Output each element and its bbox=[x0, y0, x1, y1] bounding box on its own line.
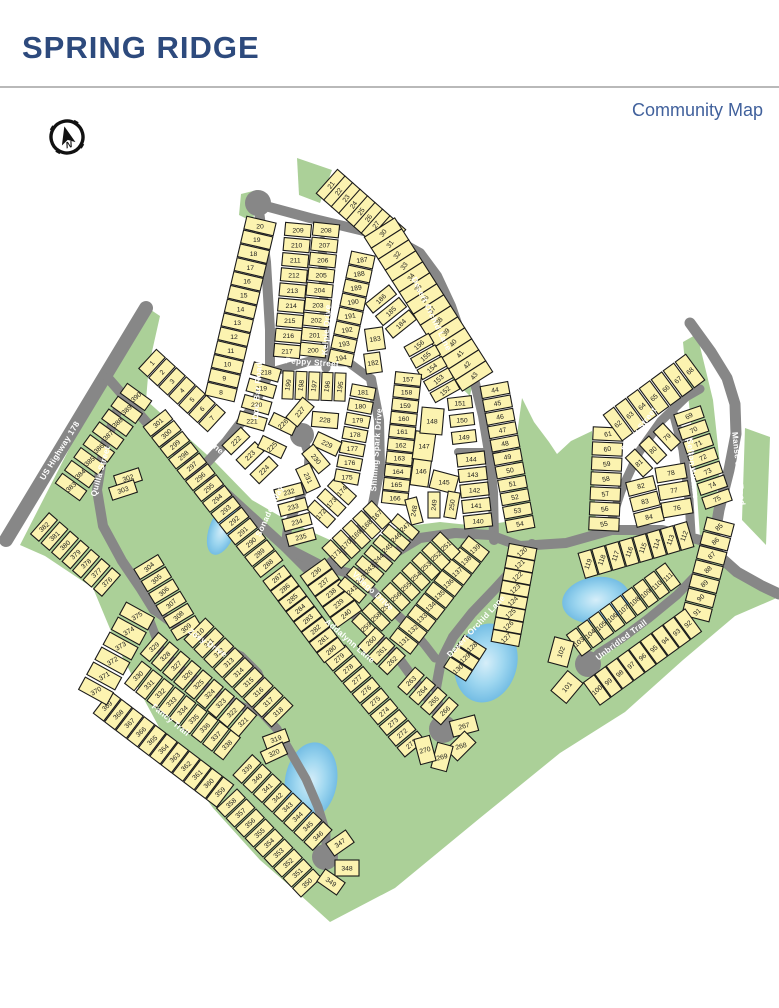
lot-number: 59 bbox=[602, 461, 611, 469]
lot-number: 161 bbox=[397, 429, 409, 436]
lot-number: 8 bbox=[219, 389, 223, 396]
lot-number: 19 bbox=[253, 237, 261, 244]
compass-icon: N bbox=[48, 118, 87, 157]
lot-number: 51 bbox=[508, 480, 517, 488]
lot-number: 45 bbox=[493, 400, 502, 408]
lot-210: 210 bbox=[283, 237, 310, 252]
lot-number: 164 bbox=[392, 469, 404, 476]
lot-number: 83 bbox=[641, 498, 650, 506]
lot-number: 178 bbox=[349, 432, 361, 439]
lot-number: 48 bbox=[501, 440, 510, 448]
lot-number: 203 bbox=[312, 302, 324, 309]
community-map: 1234567891011121314151617181920212223242… bbox=[0, 0, 779, 1008]
lot-211: 211 bbox=[282, 253, 309, 268]
lot-number: 56 bbox=[600, 506, 609, 514]
lot-number: 177 bbox=[347, 446, 359, 453]
lot-number: 158 bbox=[401, 390, 413, 397]
lot-number: 47 bbox=[498, 427, 507, 435]
lot-144: 144 bbox=[456, 451, 485, 467]
lot-number: 209 bbox=[292, 227, 304, 234]
lot-213: 213 bbox=[279, 283, 306, 298]
lot-number: 176 bbox=[344, 460, 356, 467]
lot-212: 212 bbox=[280, 268, 307, 283]
lot-number: 13 bbox=[233, 320, 241, 327]
lot-number: 151 bbox=[454, 400, 466, 407]
lot-215: 215 bbox=[276, 313, 303, 328]
lot-207: 207 bbox=[311, 237, 338, 253]
lot-number: 214 bbox=[285, 303, 297, 310]
lot-number: 202 bbox=[311, 317, 323, 324]
lot-56: 56 bbox=[589, 502, 620, 516]
lot-number: 61 bbox=[604, 431, 613, 439]
lot-number: 159 bbox=[399, 403, 411, 410]
lot-162: 162 bbox=[387, 438, 414, 453]
lot-number: 46 bbox=[496, 413, 505, 421]
lot-182: 182 bbox=[364, 352, 383, 374]
lot-179: 179 bbox=[345, 412, 371, 428]
lot-57: 57 bbox=[590, 487, 621, 501]
lot-number: 149 bbox=[458, 434, 470, 441]
lot-158: 158 bbox=[393, 385, 420, 400]
lot-number: 9 bbox=[222, 375, 226, 382]
lot-250: 250 bbox=[444, 491, 460, 519]
lot-198: 198 bbox=[295, 371, 307, 399]
lot-number: 249 bbox=[431, 499, 439, 511]
lot-209: 209 bbox=[284, 222, 311, 237]
lot-208: 208 bbox=[312, 222, 339, 238]
lot-145: 145 bbox=[429, 470, 459, 494]
lot-number: 166 bbox=[389, 495, 401, 502]
lot-number: 207 bbox=[319, 242, 331, 249]
lot-number: 205 bbox=[315, 272, 327, 279]
lot-number: 16 bbox=[243, 279, 251, 286]
lot-number: 17 bbox=[246, 265, 254, 272]
lot-number: 157 bbox=[402, 376, 414, 383]
lot-160: 160 bbox=[390, 411, 417, 426]
lot-number: 200 bbox=[307, 347, 319, 354]
lot-number: 162 bbox=[395, 442, 407, 449]
lot-number: 146 bbox=[415, 468, 427, 475]
lot-147: 147 bbox=[412, 431, 436, 462]
lot-176: 176 bbox=[337, 455, 363, 471]
lot-number: 250 bbox=[449, 499, 457, 511]
lot-number: 84 bbox=[645, 514, 654, 522]
lot-number: 145 bbox=[438, 479, 450, 486]
lot-number: 348 bbox=[341, 865, 353, 872]
lot-number: 60 bbox=[603, 446, 612, 454]
lot-149: 149 bbox=[451, 430, 476, 445]
lot-150: 150 bbox=[449, 413, 474, 428]
lot-number: 15 bbox=[240, 292, 248, 299]
lot-number: 215 bbox=[284, 318, 296, 325]
lot-number: 54 bbox=[516, 521, 525, 529]
lot-number: 212 bbox=[288, 273, 300, 280]
lot-number: 82 bbox=[637, 483, 646, 491]
lot-206: 206 bbox=[309, 252, 336, 268]
lot-number: 217 bbox=[281, 348, 293, 355]
lot-number: 52 bbox=[511, 494, 520, 502]
lot-214: 214 bbox=[278, 298, 305, 313]
lot-55: 55 bbox=[589, 517, 620, 531]
lot-number: 55 bbox=[600, 521, 609, 529]
lot-number: 20 bbox=[256, 223, 264, 230]
lot-number: 210 bbox=[291, 242, 303, 249]
lot-number: 179 bbox=[352, 418, 364, 425]
lot-number: 163 bbox=[394, 456, 406, 463]
lot-number: 150 bbox=[456, 417, 468, 424]
lot-164: 164 bbox=[384, 464, 411, 479]
lot-183: 183 bbox=[365, 327, 386, 351]
culdesac-0 bbox=[245, 190, 271, 216]
lot-number: 12 bbox=[230, 334, 238, 341]
lot-148: 148 bbox=[420, 407, 444, 435]
lot-196: 196 bbox=[321, 372, 333, 400]
lot-number: 144 bbox=[465, 456, 477, 463]
lot-177: 177 bbox=[339, 441, 365, 457]
lot-216: 216 bbox=[275, 328, 302, 343]
lot-number: 201 bbox=[309, 332, 321, 339]
lot-161: 161 bbox=[389, 425, 416, 440]
lot-number: 50 bbox=[506, 467, 515, 475]
green-area-4 bbox=[742, 428, 770, 545]
lot-348: 348 bbox=[335, 860, 359, 876]
lot-number: 57 bbox=[601, 491, 610, 499]
lot-number: 175 bbox=[341, 474, 353, 481]
lot-number: 143 bbox=[467, 472, 479, 479]
lot-225: 225 bbox=[257, 436, 286, 459]
lot-140: 140 bbox=[463, 513, 492, 529]
lot-number: 208 bbox=[320, 227, 332, 234]
lot-number: 140 bbox=[472, 518, 484, 525]
lot-142: 142 bbox=[460, 482, 489, 498]
lot-165: 165 bbox=[383, 477, 410, 492]
lot-248: 248 bbox=[405, 497, 423, 525]
lot-number: 44 bbox=[491, 387, 500, 395]
lot-60: 60 bbox=[592, 442, 623, 456]
lot-number: 141 bbox=[471, 503, 483, 510]
lot-159: 159 bbox=[392, 398, 419, 413]
lot-195: 195 bbox=[334, 373, 346, 401]
lot-number: 206 bbox=[317, 257, 329, 264]
lot-number: 49 bbox=[503, 454, 512, 462]
lot-number: 180 bbox=[355, 403, 367, 410]
page: SPRING RIDGE Community Map 1234567891011… bbox=[0, 0, 779, 1008]
lot-157: 157 bbox=[394, 372, 421, 387]
lot-166: 166 bbox=[381, 491, 408, 506]
lot-number: 228 bbox=[319, 417, 331, 425]
lot-178: 178 bbox=[342, 426, 368, 442]
lot-228: 228 bbox=[311, 411, 338, 428]
lot-number: 213 bbox=[287, 288, 299, 295]
lot-number: 53 bbox=[513, 507, 522, 515]
lot-number: 58 bbox=[602, 476, 611, 484]
lot-59: 59 bbox=[591, 457, 622, 471]
lot-204: 204 bbox=[306, 282, 333, 298]
lot-number: 142 bbox=[469, 487, 481, 494]
lot-number: 147 bbox=[418, 443, 430, 450]
lot-number: 160 bbox=[398, 416, 410, 423]
lot-197: 197 bbox=[308, 372, 320, 400]
lot-141: 141 bbox=[462, 497, 491, 513]
lot-number: 10 bbox=[224, 362, 232, 369]
lot-180: 180 bbox=[347, 398, 373, 414]
lot-number: 216 bbox=[283, 333, 295, 340]
lot-number: 181 bbox=[357, 389, 369, 396]
lot-number: 165 bbox=[391, 482, 403, 489]
lot-number: 77 bbox=[670, 487, 679, 495]
lot-205: 205 bbox=[308, 267, 335, 283]
lot-143: 143 bbox=[458, 466, 487, 482]
lot-151: 151 bbox=[447, 396, 472, 411]
lot-number: 204 bbox=[314, 287, 326, 294]
lot-163: 163 bbox=[386, 451, 413, 466]
lot-number: 18 bbox=[250, 251, 258, 258]
lot-number: 11 bbox=[227, 348, 234, 355]
lot-number: 78 bbox=[667, 470, 676, 478]
lot-199: 199 bbox=[282, 371, 294, 399]
lot-58: 58 bbox=[591, 472, 622, 486]
lot-number: 211 bbox=[290, 258, 301, 265]
lot-number: 76 bbox=[673, 505, 682, 513]
lot-249: 249 bbox=[428, 492, 440, 518]
lot-number: 148 bbox=[426, 418, 438, 425]
lot-number: 14 bbox=[237, 306, 245, 313]
